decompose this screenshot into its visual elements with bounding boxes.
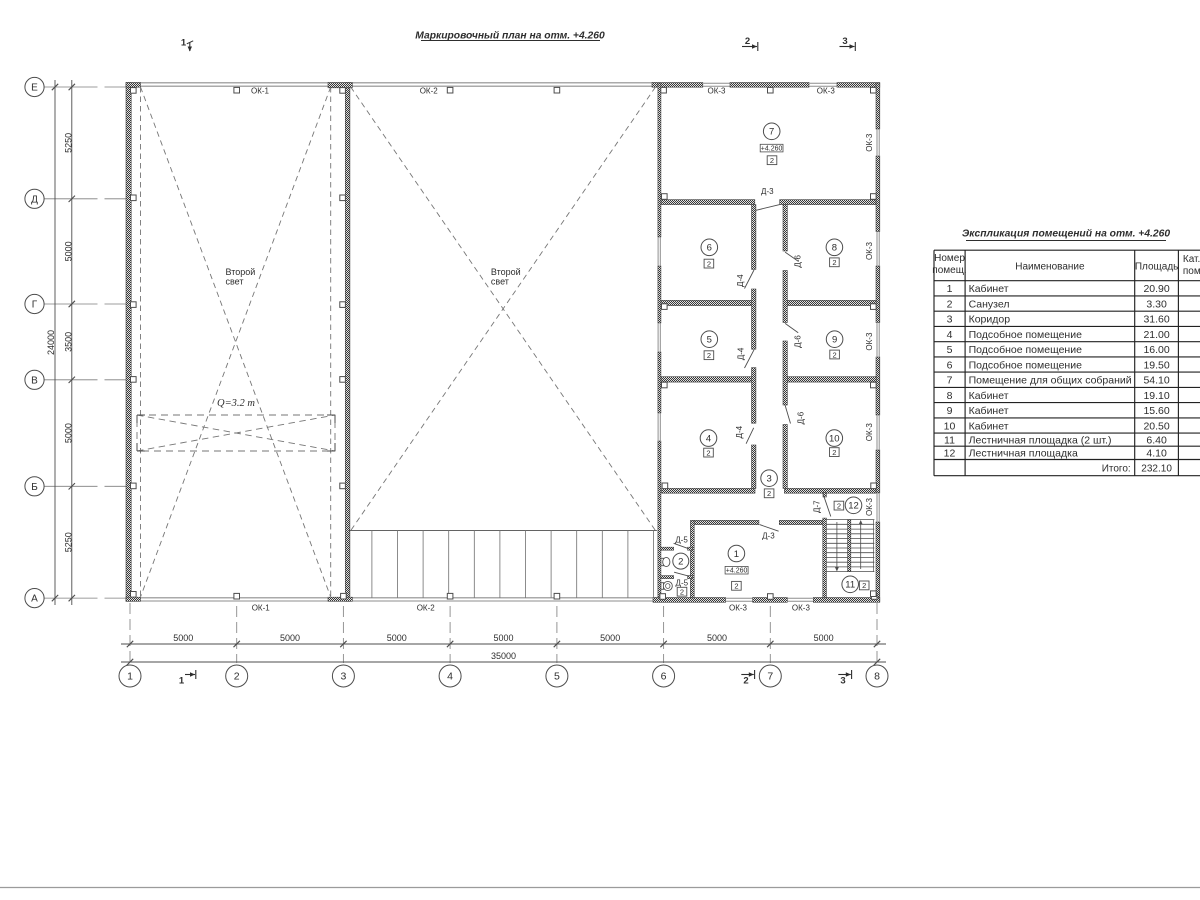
- svg-text:ОК-3: ОК-3: [865, 332, 874, 351]
- svg-text:Q=3.2 т: Q=3.2 т: [217, 398, 255, 409]
- svg-text:11: 11: [845, 580, 855, 591]
- svg-text:15.60: 15.60: [1143, 405, 1169, 417]
- svg-text:24000: 24000: [46, 330, 56, 355]
- svg-text:3500: 3500: [64, 332, 74, 352]
- svg-text:Б: Б: [31, 482, 38, 493]
- svg-text:9: 9: [832, 335, 837, 346]
- svg-text:6: 6: [707, 243, 712, 254]
- svg-text:19.10: 19.10: [1143, 390, 1169, 402]
- svg-text:ОК-3: ОК-3: [865, 497, 874, 516]
- svg-text:3.30: 3.30: [1146, 298, 1167, 310]
- svg-text:+4.260: +4.260: [726, 568, 748, 575]
- svg-text:3: 3: [842, 36, 847, 47]
- svg-text:ОК-3: ОК-3: [865, 241, 874, 260]
- svg-text:А: А: [31, 594, 38, 605]
- svg-text:19.50: 19.50: [1143, 359, 1169, 371]
- svg-text:ОК-3: ОК-3: [708, 87, 727, 96]
- svg-text:Наименование: Наименование: [1015, 262, 1085, 273]
- svg-text:20.90: 20.90: [1143, 283, 1169, 295]
- svg-text:8: 8: [874, 671, 880, 683]
- svg-text:2: 2: [832, 448, 836, 457]
- svg-text:4: 4: [447, 671, 453, 683]
- svg-text:5000: 5000: [814, 633, 834, 643]
- svg-text:5000: 5000: [64, 241, 74, 261]
- svg-text:1: 1: [734, 549, 739, 560]
- svg-text:свет: свет: [491, 276, 509, 286]
- svg-text:3: 3: [947, 314, 953, 326]
- svg-text:2: 2: [745, 36, 750, 47]
- svg-text:2: 2: [734, 582, 738, 591]
- svg-text:6.40: 6.40: [1146, 434, 1167, 446]
- svg-text:Кат.: Кат.: [1183, 254, 1200, 265]
- svg-text:Д: Д: [31, 194, 38, 205]
- svg-text:Д-4: Д-4: [737, 347, 746, 360]
- svg-text:ОК-3: ОК-3: [817, 87, 836, 96]
- svg-text:Подсобное помещение: Подсобное помещение: [969, 359, 1083, 371]
- svg-text:5: 5: [947, 344, 953, 356]
- svg-text:Д-5: Д-5: [676, 578, 689, 587]
- svg-text:ОК-3: ОК-3: [729, 604, 748, 613]
- svg-text:6: 6: [947, 359, 953, 371]
- svg-text:2: 2: [707, 259, 711, 268]
- svg-text:Д-3: Д-3: [762, 532, 775, 541]
- svg-text:Д-6: Д-6: [793, 254, 802, 267]
- svg-text:1: 1: [947, 283, 953, 295]
- svg-text:ОК-3: ОК-3: [865, 423, 874, 442]
- svg-text:Д-4: Д-4: [736, 274, 745, 287]
- svg-text:Экспликация помещений на отм.: Экспликация помещений на отм. +4.260: [962, 229, 1170, 240]
- svg-text:5000: 5000: [600, 633, 620, 643]
- svg-text:20.50: 20.50: [1143, 420, 1169, 432]
- svg-text:9: 9: [947, 405, 953, 417]
- svg-text:Кабинет: Кабинет: [969, 420, 1009, 432]
- svg-text:Лестничная площадка (2 шт.): Лестничная площадка (2 шт.): [969, 434, 1112, 446]
- svg-text:7: 7: [769, 127, 774, 138]
- svg-text:7: 7: [767, 671, 773, 683]
- svg-text:Д-6: Д-6: [793, 335, 802, 348]
- svg-text:Коридор: Коридор: [969, 314, 1011, 326]
- svg-text:Д-6: Д-6: [797, 411, 806, 424]
- svg-text:2: 2: [947, 298, 953, 310]
- svg-text:11: 11: [944, 434, 955, 446]
- svg-text:Итого:: Итого:: [1102, 463, 1131, 474]
- svg-text:8: 8: [832, 243, 837, 254]
- svg-text:ОК-3: ОК-3: [865, 133, 874, 152]
- svg-text:5250: 5250: [64, 133, 74, 153]
- svg-text:5000: 5000: [173, 633, 193, 643]
- svg-text:2: 2: [770, 156, 774, 165]
- svg-text:Кабинет: Кабинет: [969, 283, 1009, 295]
- svg-text:12: 12: [848, 501, 859, 512]
- svg-text:7: 7: [947, 375, 953, 387]
- svg-text:6: 6: [661, 671, 667, 683]
- svg-text:35000: 35000: [491, 651, 516, 661]
- svg-text:В: В: [31, 375, 38, 386]
- svg-text:Кабинет: Кабинет: [969, 390, 1009, 402]
- svg-text:Санузел: Санузел: [969, 298, 1010, 310]
- svg-text:Е: Е: [31, 83, 38, 94]
- svg-text:5000: 5000: [493, 633, 513, 643]
- svg-text:10: 10: [829, 433, 840, 444]
- svg-text:1: 1: [179, 676, 185, 687]
- svg-text:Помещение для общих собраний: Помещение для общих собраний: [969, 375, 1132, 387]
- svg-text:ОК-1: ОК-1: [251, 87, 270, 96]
- svg-text:4: 4: [947, 329, 953, 341]
- svg-text:Площадь: Площадь: [1135, 262, 1179, 273]
- svg-text:5000: 5000: [64, 423, 74, 443]
- svg-text:4: 4: [706, 433, 711, 444]
- svg-text:5250: 5250: [64, 532, 74, 552]
- svg-text:2: 2: [707, 351, 711, 360]
- svg-text:1: 1: [127, 671, 133, 683]
- svg-text:помещ.: помещ.: [932, 265, 966, 276]
- svg-text:ОК-2: ОК-2: [417, 604, 436, 613]
- svg-text:16.00: 16.00: [1143, 344, 1169, 356]
- svg-text:2: 2: [678, 556, 683, 567]
- svg-text:Д-5: Д-5: [675, 536, 688, 545]
- svg-text:1: 1: [181, 38, 187, 49]
- svg-text:5: 5: [707, 335, 712, 346]
- svg-text:8: 8: [947, 390, 953, 402]
- svg-text:ОК-2: ОК-2: [420, 87, 439, 96]
- svg-text:2: 2: [837, 501, 841, 510]
- svg-text:2: 2: [832, 258, 836, 267]
- svg-text:+4.260: +4.260: [761, 146, 783, 153]
- svg-text:3: 3: [766, 474, 771, 485]
- svg-text:2: 2: [706, 448, 710, 457]
- svg-text:3: 3: [340, 671, 346, 683]
- svg-text:2: 2: [680, 588, 684, 597]
- svg-text:5000: 5000: [280, 633, 300, 643]
- svg-text:Лестничная площадка: Лестничная площадка: [969, 448, 1078, 460]
- svg-text:4.10: 4.10: [1146, 448, 1167, 460]
- svg-text:5000: 5000: [387, 633, 407, 643]
- svg-text:Д-4: Д-4: [735, 425, 744, 438]
- svg-text:Кабинет: Кабинет: [969, 405, 1009, 417]
- svg-text:Маркировочный план на отм. +4.: Маркировочный план на отм. +4.260: [415, 31, 605, 42]
- svg-text:ОК-1: ОК-1: [252, 604, 271, 613]
- svg-text:10: 10: [944, 420, 956, 432]
- svg-text:Д-3: Д-3: [761, 187, 774, 196]
- svg-text:2: 2: [767, 489, 771, 498]
- svg-text:свет: свет: [226, 276, 244, 286]
- svg-text:3: 3: [840, 676, 845, 687]
- svg-text:2: 2: [833, 350, 837, 359]
- svg-text:2: 2: [743, 676, 748, 687]
- svg-text:31.60: 31.60: [1143, 314, 1169, 326]
- svg-text:Д-7: Д-7: [813, 500, 822, 513]
- svg-text:Подсобное помещение: Подсобное помещение: [969, 329, 1083, 341]
- svg-text:12: 12: [944, 448, 956, 460]
- svg-text:Подсобное помещение: Подсобное помещение: [969, 344, 1083, 356]
- svg-text:5000: 5000: [707, 633, 727, 643]
- svg-text:2: 2: [234, 671, 240, 683]
- svg-text:Г: Г: [32, 300, 38, 311]
- svg-text:5: 5: [554, 671, 560, 683]
- svg-text:пом.: пом.: [1183, 266, 1200, 277]
- svg-text:21.00: 21.00: [1143, 329, 1169, 341]
- svg-text:Номер: Номер: [934, 253, 965, 264]
- svg-text:2: 2: [862, 581, 866, 590]
- svg-text:ОК-3: ОК-3: [792, 604, 811, 613]
- svg-text:232.10: 232.10: [1141, 463, 1172, 474]
- svg-text:54.10: 54.10: [1143, 375, 1169, 387]
